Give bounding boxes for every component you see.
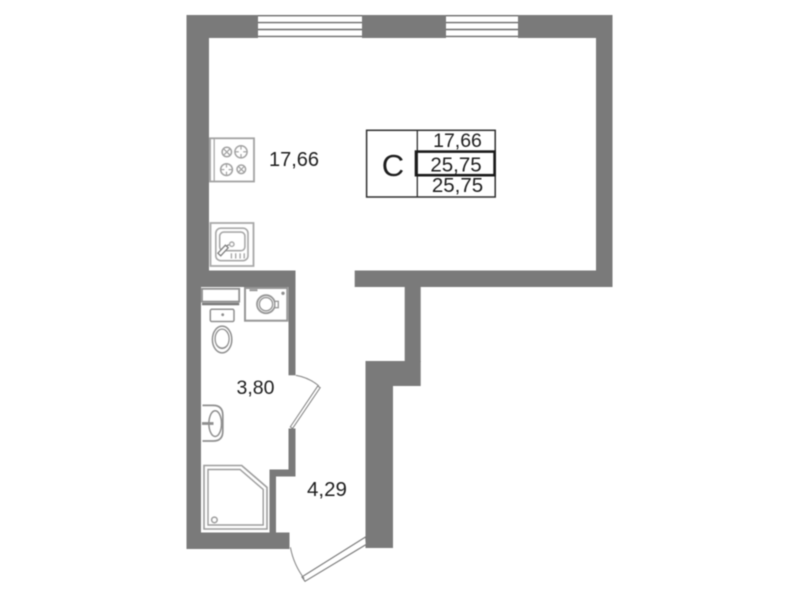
svg-text:3,80: 3,80 — [237, 377, 275, 399]
svg-text:4,29: 4,29 — [307, 478, 347, 501]
svg-text:17,66: 17,66 — [433, 130, 482, 152]
svg-text:C: C — [382, 148, 404, 183]
svg-text:25,75: 25,75 — [432, 174, 483, 197]
svg-text:17,66: 17,66 — [269, 149, 319, 171]
